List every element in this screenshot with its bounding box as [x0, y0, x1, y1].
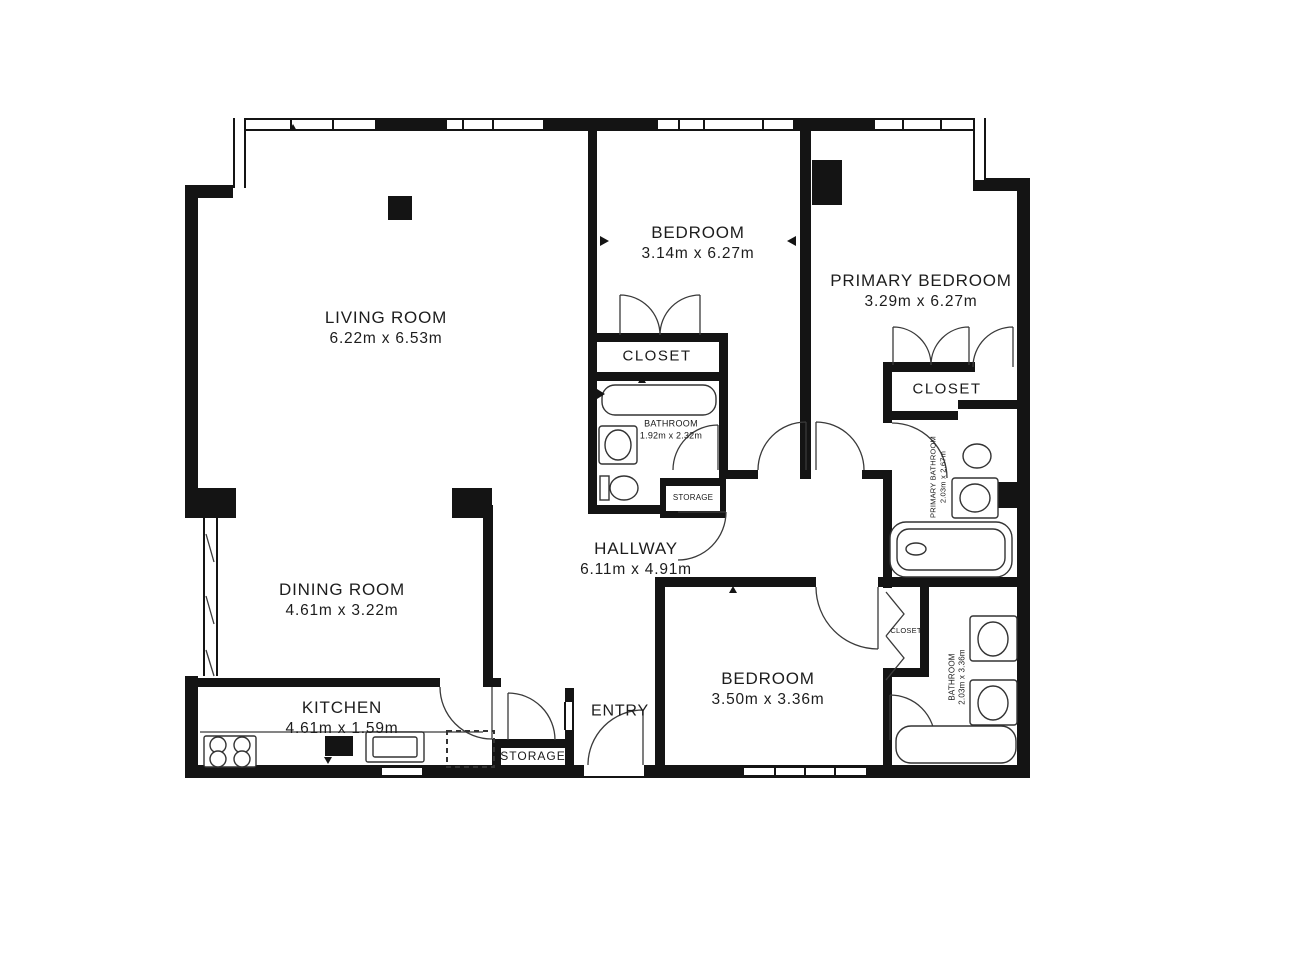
room-dims: 1.92m x 2.32m [640, 430, 702, 442]
room-label-bedroom-bottom: BEDROOM 3.50m x 3.36m [712, 668, 825, 710]
door-arc [508, 693, 555, 740]
room-name: BEDROOM [642, 222, 755, 244]
room-dims: 4.61m x 3.22m [279, 601, 405, 621]
bathtub-drain [906, 543, 926, 555]
sink [960, 484, 990, 512]
room-label-bathroom-mid: BATHROOM 1.92m x 2.32m [640, 418, 702, 441]
room-label-entry: ENTRY [591, 702, 649, 723]
marker [638, 376, 646, 383]
room-dims: 3.50m x 3.36m [712, 690, 825, 710]
door-arc [973, 327, 1013, 367]
bathtub [602, 385, 716, 415]
bathtub [896, 726, 1016, 763]
marker [324, 757, 332, 764]
room-dims: 6.11m x 4.91m [580, 560, 692, 580]
room-label-closet-primary: CLOSET [912, 379, 981, 399]
room-label-living-room: LIVING ROOM 6.22m x 6.53m [325, 307, 447, 349]
kitchen-sink-basin [373, 737, 417, 757]
sink [605, 430, 631, 460]
toilet-tank [600, 476, 609, 500]
room-dims: 3.14m x 6.27m [642, 244, 755, 264]
room-name: PRIMARY BEDROOM [830, 270, 1011, 292]
door-arc [893, 327, 931, 365]
room-dims: 3.29m x 6.27m [830, 292, 1011, 312]
room-name: BATHROOM [948, 649, 958, 705]
door-arc [620, 295, 660, 335]
room-label-closet-mid: CLOSET [622, 346, 691, 366]
door-arc [816, 422, 864, 470]
marker [292, 678, 300, 685]
room-dims: 6.22m x 6.53m [325, 329, 447, 349]
burner [234, 751, 250, 767]
room-name: PRIMARY BATHROOM [928, 436, 938, 518]
room-label-bathroom-bottom: BATHROOM 2.03m x 3.36m [948, 649, 969, 705]
marker [729, 586, 737, 593]
room-dims: 2.03m x 3.36m [958, 649, 968, 705]
bay-window-ticks [206, 534, 214, 676]
room-label-closet-bedroom: CLOSET [890, 626, 921, 636]
room-label-primary-bedroom: PRIMARY BEDROOM 3.29m x 6.27m [830, 270, 1011, 312]
sink [978, 622, 1008, 656]
room-dims: 2.03m x 2.67m [938, 436, 948, 518]
marker [600, 236, 609, 246]
toilet [963, 444, 991, 468]
marker [289, 124, 297, 131]
room-label-hallway: HALLWAY 6.11m x 4.91m [580, 538, 692, 580]
room-name: DINING ROOM [279, 579, 405, 601]
room-label-primary-bathroom: PRIMARY BATHROOM 2.03m x 2.67m [928, 436, 948, 518]
room-name: BATHROOM [640, 418, 702, 430]
door-arc [816, 587, 878, 649]
room-name: BEDROOM [712, 668, 825, 690]
room-label-bedroom-top: BEDROOM 3.14m x 6.27m [642, 222, 755, 264]
door-arc [758, 422, 806, 470]
refrigerator [447, 731, 494, 767]
sink [978, 686, 1008, 720]
room-name: KITCHEN [286, 697, 399, 719]
room-label-storage-bottom: STORAGE [500, 749, 565, 765]
room-name: ENTRY [591, 702, 649, 723]
floorplan-lines [0, 0, 1292, 960]
room-label-storage-mid: STORAGE [673, 493, 713, 503]
room-name: LIVING ROOM [325, 307, 447, 329]
room-name: HALLWAY [580, 538, 692, 560]
floor-plan: LIVING ROOM 6.22m x 6.53m BEDROOM 3.14m … [0, 0, 1292, 960]
toilet [610, 476, 638, 500]
bifold-door [886, 592, 904, 680]
door-arc [660, 295, 700, 335]
marker [787, 236, 796, 246]
room-label-dining-room: DINING ROOM 4.61m x 3.22m [279, 579, 405, 621]
room-label-kitchen: KITCHEN 4.61m x 1.59m [286, 697, 399, 739]
door-arc [931, 327, 969, 365]
burner [210, 751, 226, 767]
room-dims: 4.61m x 1.59m [286, 719, 399, 739]
